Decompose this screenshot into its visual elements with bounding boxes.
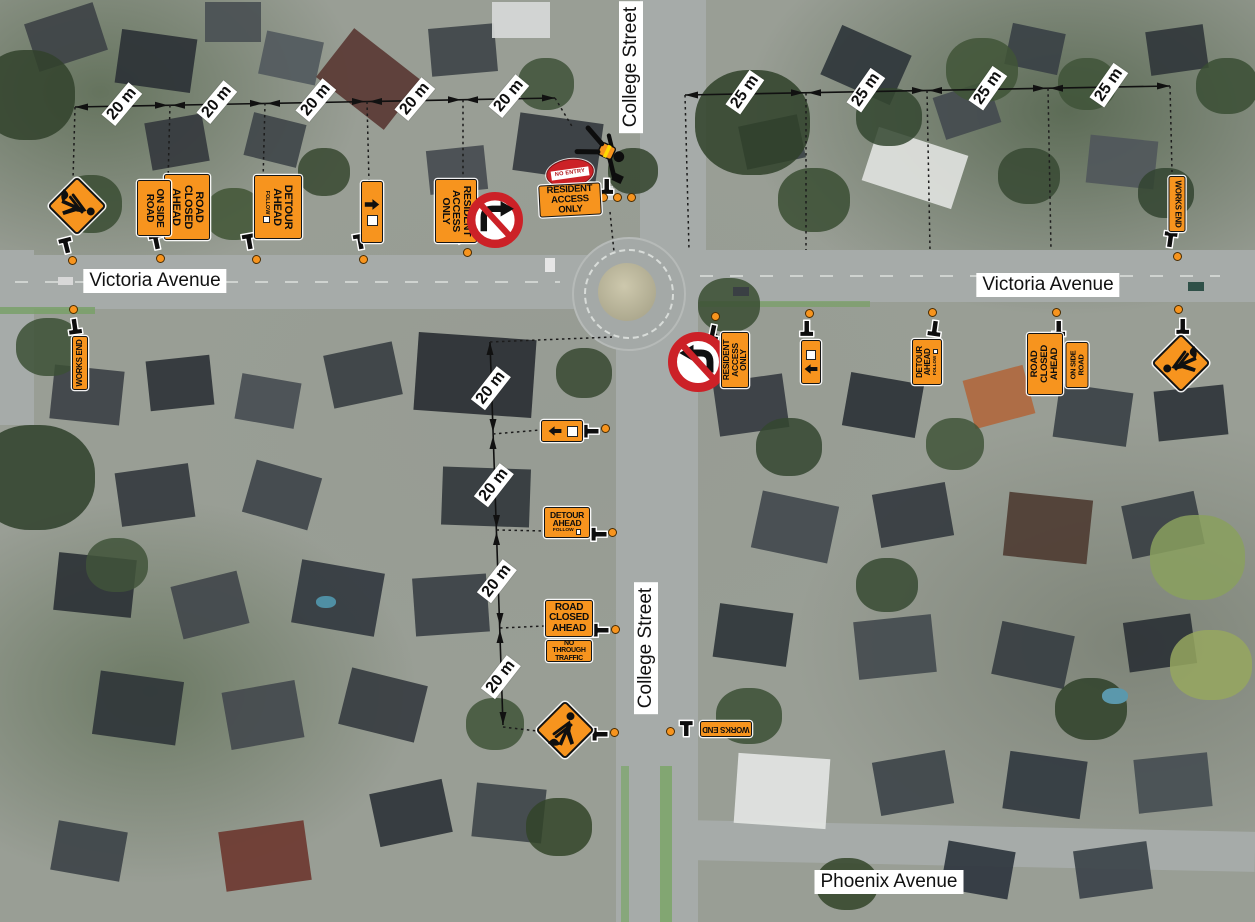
street-label-victoria-east: Victoria Avenue [976,273,1119,297]
sign-post-icon [582,423,602,440]
follow-row: FOLLOW [933,349,938,376]
street-label-victoria-west: Victoria Avenue [83,269,226,293]
no-left-turn-sign [668,332,728,392]
cone-marker-dot [69,305,78,314]
sign-text-line: AHEAD [553,519,582,528]
follow-row: FOLLOW [553,529,581,535]
works-end-sign-west: WORKS END [72,336,88,390]
cone-marker-dot [613,193,622,202]
sign-text-line: AHEAD [924,349,932,376]
white-square-icon [576,529,582,535]
detour-ahead-sign-west: DETOUR AHEAD FOLLOW [254,175,302,239]
sign-post-icon [1174,316,1191,336]
white-square-icon [263,216,270,223]
cone-marker-dot [252,255,261,264]
cone-marker-dot [601,424,610,433]
roadworks-sign-college [536,701,594,759]
sign-text-line: ON SIDE [154,188,164,227]
sign-text-line: AHEAD [271,188,282,226]
sign-text-line: ROAD [193,191,204,222]
sign-post-icon [1161,229,1181,251]
cone-marker-dot [608,528,617,537]
sign-text-line: CLOSED [181,185,192,229]
arrow-left-icon [547,425,563,437]
cone-marker-dot [463,248,472,257]
cone-marker-dot [610,728,619,737]
sign-text-line: ROAD [1077,355,1085,376]
traffic-management-plan-map: ROAD CLOSED AHEAD ON SIDE ROAD DETOUR AH… [0,0,1255,922]
street-label-college-south: College Street [634,582,658,714]
detour-arrow-sign-college [541,420,583,442]
sign-text-line: WORKS END [1173,180,1181,227]
no-through-traffic-sign: NO THROUGH TRAFFIC [546,640,592,662]
works-end-sign-east: WORKS END [1169,176,1186,232]
sign-text-line: DETOUR [282,185,293,229]
no-entry-band: NO ENTRY [551,166,590,180]
sign-text-line: AHEAD [1050,348,1060,380]
follow-row: FOLLOW [263,191,270,224]
worker-digging-icon [543,708,587,752]
cone-marker-dot [611,625,620,634]
road-closed-ahead-sign-college: ROAD CLOSED AHEAD [545,600,593,637]
sign-text-line: TRAFFIC [555,655,583,662]
detour-arrow-sign-east [801,340,821,384]
sign-text-line: AHEAD [552,624,586,634]
sign-text-line: ACCESS ONLY [540,194,601,217]
sign-text-line: AHEAD [170,188,181,226]
sign-post-icon [592,622,612,639]
no-right-turn-sign [467,192,523,248]
on-side-road-sign-west: ON SIDE ROAD [137,180,171,236]
cone-marker-dot [1052,308,1061,317]
roadworks-sign-east [1152,334,1210,392]
arrow-left-icon [803,363,819,375]
on-side-road-sign-east: ON SIDE ROAD [1066,342,1089,388]
sign-text-line: NO THROUGH [547,640,591,654]
works-end-sign-college: WORKS END [700,721,752,737]
white-square-icon [567,426,578,437]
sign-post-icon [798,318,815,338]
sign-post-icon [678,719,695,739]
sign-text-line: NO ENTRY [555,168,586,178]
cone-marker-dot [1174,305,1183,314]
sign-post-icon [590,526,610,543]
cone-marker-dot [156,254,165,263]
sign-text-line: ROAD [144,194,154,222]
sign-post-icon [925,317,945,339]
sign-text-line: WORKS END [76,339,84,386]
street-label-phoenix-avenue: Phoenix Avenue [815,870,964,894]
worker-digging-icon [55,184,99,228]
cone-marker-dot [711,312,720,321]
worker-digging-icon [1159,341,1203,385]
cone-marker-dot [1173,252,1182,261]
detour-arrow-sign-west [361,181,383,243]
arrow-right-icon [363,198,381,211]
cone-marker-dot [68,256,77,265]
sign-text-line: FOLLOW [553,529,574,534]
sign-text-line: ACCESS ONLY [440,180,462,242]
cone-marker-dot [928,308,937,317]
white-square-icon [367,215,378,226]
sign-text-line: ACCESS ONLY [731,333,749,387]
sign-text-line: FOLLOW [933,356,938,376]
resident-access-sign-south: RESIDENT ACCESS ONLY [721,332,749,388]
sign-post-icon [65,315,85,337]
detour-ahead-sign-college: DETOUR AHEAD FOLLOW [544,507,590,538]
sign-text-line: WORKS END [702,725,749,733]
roadworks-sign-west [48,177,106,235]
street-label-college-top: College Street [619,1,643,133]
resident-access-sign-college-top: RESIDENT ACCESS ONLY [538,182,602,217]
cone-marker-dot [627,193,636,202]
cone-marker-dot [805,309,814,318]
cone-marker-dot [666,727,675,736]
road-closed-ahead-sign-east: ROAD CLOSED AHEAD [1027,333,1063,395]
white-square-icon [806,350,816,360]
detour-ahead-sign-east: DETOUR AHEAD FOLLOW [912,339,942,385]
cone-marker-dot [359,255,368,264]
white-square-icon [933,349,938,354]
sign-text-line: FOLLOW [263,191,269,215]
